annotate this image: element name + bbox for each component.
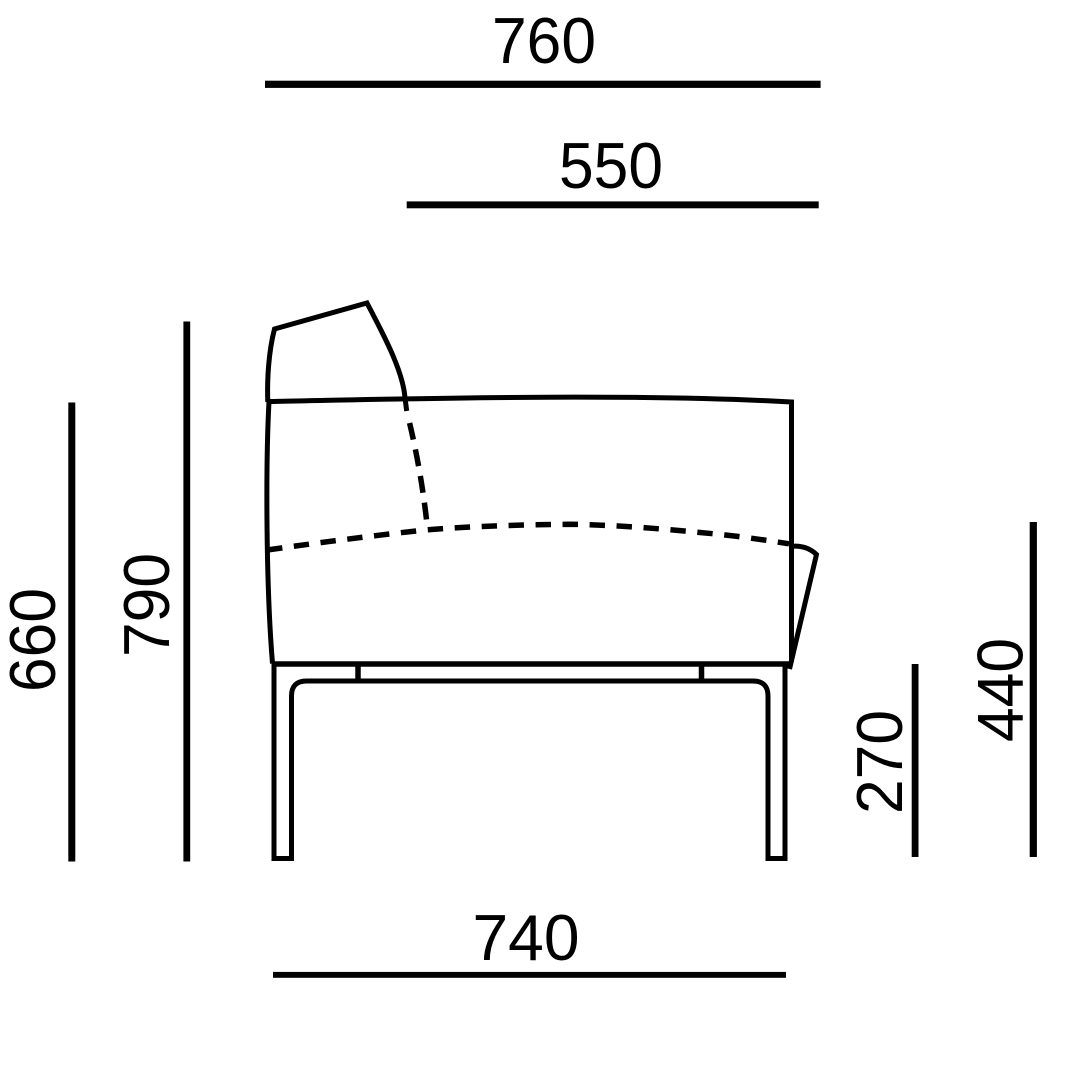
- svg-text:270: 270: [843, 710, 916, 814]
- svg-text:440: 440: [964, 638, 1037, 742]
- svg-text:660: 660: [0, 588, 69, 692]
- svg-text:550: 550: [559, 129, 663, 202]
- svg-text:760: 760: [492, 4, 596, 77]
- svg-text:790: 790: [110, 553, 183, 657]
- svg-text:740: 740: [473, 901, 580, 974]
